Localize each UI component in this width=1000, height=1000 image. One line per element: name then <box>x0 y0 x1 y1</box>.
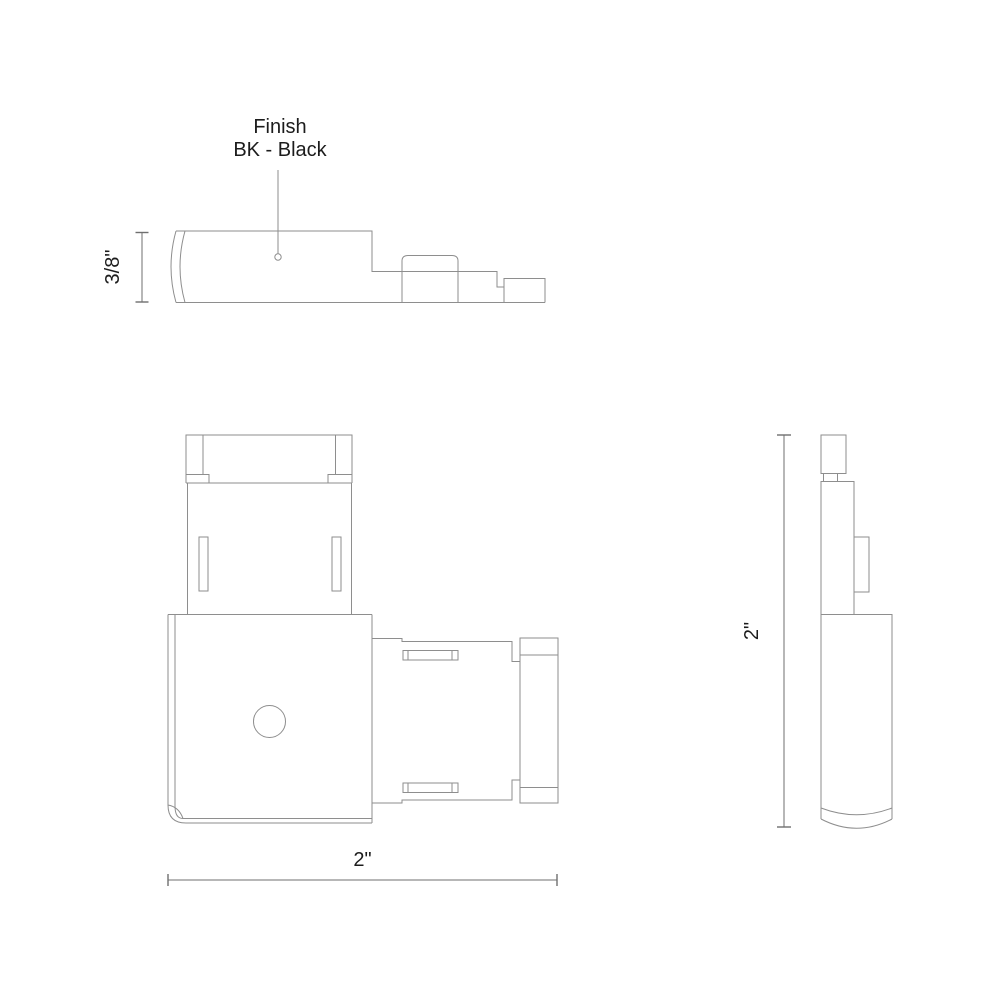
width-dimension: 2" <box>168 849 557 886</box>
finish-label-line2: BK - Black <box>233 139 327 161</box>
plan-body-left-edge <box>168 615 186 824</box>
thickness-dimension: 3/8" <box>102 233 149 303</box>
finish-leader-dot <box>275 254 281 260</box>
drawing-sheet: Finish BK - Black 3/8" <box>0 0 1000 1000</box>
plan-vertical-arm <box>186 483 352 615</box>
plan-connector-slot-top-dividers <box>408 651 452 661</box>
profile-body-bottom-arcs <box>821 808 892 828</box>
side-elevation-view <box>171 231 545 303</box>
plan-center-hole <box>254 706 286 738</box>
plan-end-cap <box>520 638 558 803</box>
side-view-plug <box>504 279 545 303</box>
side-view-body-outline <box>176 231 504 287</box>
profile-view <box>821 435 892 828</box>
profile-arm <box>821 482 854 615</box>
plan-arm-slot-right <box>332 537 341 591</box>
height-dim-text: 2" <box>741 622 763 640</box>
plan-top-cap-left-tab <box>186 475 209 484</box>
plan-connector-slot-top <box>403 651 458 661</box>
finish-label-line1: Finish <box>253 116 306 138</box>
profile-clip-bump <box>854 537 869 592</box>
profile-body <box>821 615 892 820</box>
profile-top-cap <box>821 435 846 474</box>
technical-drawing-canvas: Finish BK - Black 3/8" <box>0 0 1000 1000</box>
plan-connector-slot-bottom <box>403 783 458 793</box>
plan-arm-slot-left <box>199 537 208 591</box>
side-view-clip-bump <box>402 256 458 303</box>
plan-top-cap <box>186 435 352 483</box>
plan-view <box>168 435 558 823</box>
side-view-nose-outer-arc <box>171 231 176 303</box>
height-dimension: 2" <box>741 435 791 827</box>
plan-end-cap-inner-lines <box>520 655 558 788</box>
plan-connector-slot-bottom-dividers <box>408 783 452 793</box>
side-view-nose-inner-arc <box>180 231 185 303</box>
finish-callout: Finish BK - Black <box>233 116 327 260</box>
plan-top-cap-right-tab <box>328 475 352 484</box>
thickness-dim-text: 3/8" <box>102 250 124 285</box>
profile-tab <box>824 474 838 482</box>
width-dim-text: 2" <box>353 849 371 871</box>
